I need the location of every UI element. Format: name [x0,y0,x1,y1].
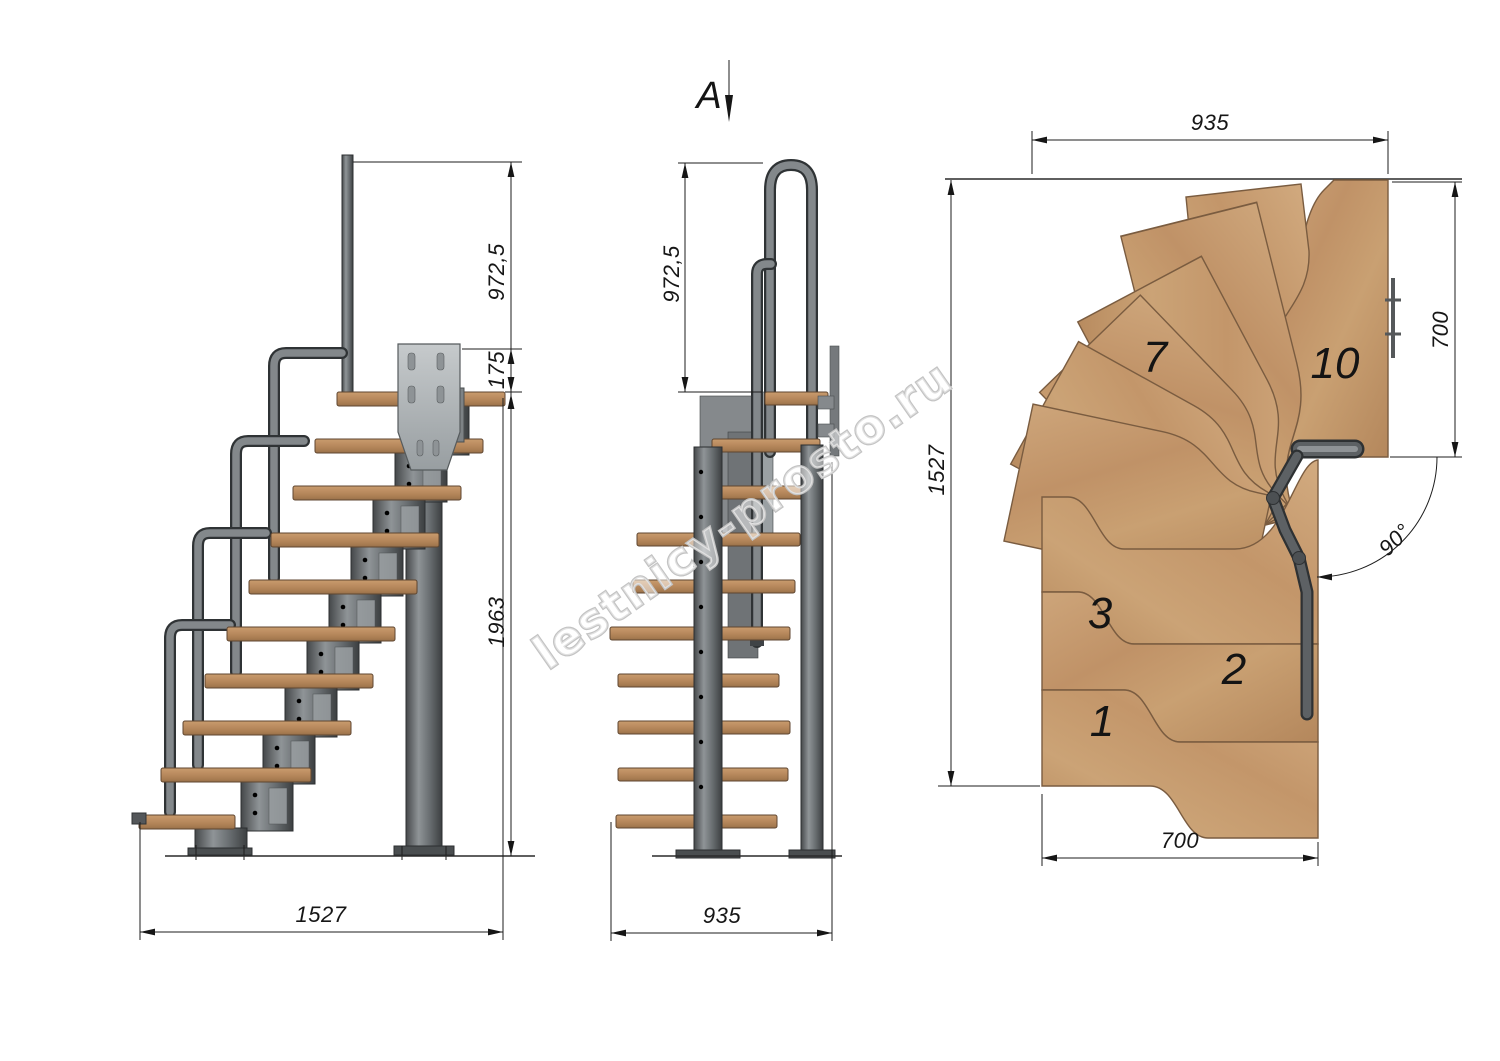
turn-angle-arc [1317,457,1437,577]
stringer-foot [188,828,252,860]
dim-plan-landing-right: 700 [1428,311,1453,349]
step-number-7: 7 [1143,333,1169,382]
rail-joint [1293,552,1306,565]
staircase-technical-drawing: 972,5 175 1963 1527 A [0,0,1500,1061]
section-label: A [694,75,721,117]
section-marker-a: A [694,60,733,122]
step-number-3: 3 [1088,589,1113,638]
dim-side-length: 1527 [296,902,347,927]
dim-front-width: 935 [703,903,741,928]
dim-plan-run-bottom: 700 [1161,828,1199,853]
tread [205,674,373,688]
tread [161,768,311,782]
step-number-1: 1 [1090,697,1114,746]
dim-side-landing-rise: 175 [484,351,509,389]
dim-plan-width-top: 935 [1191,110,1229,135]
tread [293,486,461,500]
step-number-2: 2 [1221,645,1246,694]
plan-view: 1 2 3 7 10 935 1527 700 [924,110,1462,866]
dim-side-lower-height: 1963 [484,596,509,647]
tread [227,627,395,641]
post-end-cap [750,640,764,646]
tread-first [139,815,235,829]
rail-joint [1267,492,1280,505]
tread [271,533,439,547]
side-view: 972,5 175 1963 1527 [132,155,535,940]
drawing-canvas: 972,5 175 1963 1527 A [0,0,1500,1061]
view-direction-arrow-icon [725,95,733,122]
column-base-flange [676,850,740,858]
step-number-10: 10 [1311,339,1360,388]
dim-plan-depth-left: 1527 [924,444,949,495]
dim-front-rail-height: 972,5 [659,245,684,303]
tread-end-cap [132,813,146,824]
dim-plan-turn-angle: 90° [1374,519,1416,561]
tread [183,721,351,735]
column-base-flange [394,846,454,855]
dim-side-rail-height: 972,5 [484,243,509,301]
tread [249,580,417,594]
pole-base-flange [789,850,835,858]
